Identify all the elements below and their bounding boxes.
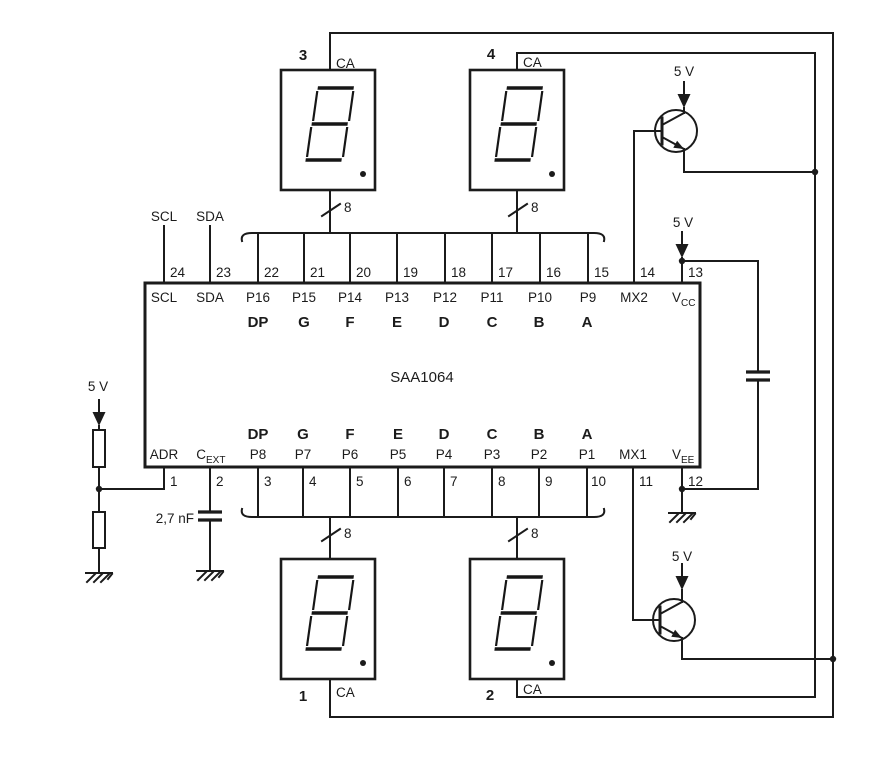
pin-6-number: 6	[404, 474, 412, 489]
seg-top-f: F	[345, 314, 354, 331]
pin-15-number: 15	[594, 265, 609, 280]
seg-top-b: B	[534, 314, 545, 331]
top-bus-brace	[242, 233, 605, 241]
mx2-wire	[634, 131, 662, 283]
pin-11-number: 11	[639, 474, 653, 489]
schematic-page: SAA1064 24 23 22 21 20 19 18 17 16 15 14…	[0, 0, 891, 772]
display-3: 3 CA	[281, 47, 375, 190]
scl-external-label: SCL	[151, 209, 178, 224]
pin-14-number: 14	[640, 265, 656, 280]
supply-arrow-icon	[676, 232, 689, 258]
seg-bot-e: E	[393, 426, 403, 443]
pin-24-number: 24	[170, 265, 186, 280]
bottom-bus-brace	[242, 509, 605, 517]
top-pin-stubs	[258, 233, 588, 283]
seg-top-dp: DP	[248, 314, 269, 331]
pin-19-number: 19	[403, 265, 418, 280]
decoupling-capacitor-icon	[746, 372, 770, 380]
seg-bot-dp: DP	[248, 426, 269, 443]
pin-p13-label: P13	[385, 290, 409, 305]
pin-13-number: 13	[688, 265, 703, 280]
pin-3-number: 3	[264, 474, 272, 489]
pin-p2-label: P2	[531, 447, 548, 462]
top-pin-numbers: 24 23 22 21 20 19 18 17 16 15 14 13	[170, 265, 703, 280]
pin-p4-label: P4	[436, 447, 453, 462]
pin-21-number: 21	[310, 265, 325, 280]
display-4-ca-label: CA	[523, 55, 542, 70]
pin-cext-label: C	[196, 447, 206, 462]
display-3-number: 3	[299, 47, 307, 64]
supply-arrow-icon	[676, 564, 689, 590]
saa1064-schematic: SAA1064 24 23 22 21 20 19 18 17 16 15 14…	[0, 0, 891, 772]
pin-mx1-label: MX1	[619, 447, 647, 462]
seg-top-e: E	[392, 314, 402, 331]
transistor-mx1-emitter-arrow-icon	[671, 630, 682, 638]
seg-bot-a: A	[582, 426, 593, 443]
display-1-ca-label: CA	[336, 685, 355, 700]
bus-width-top-right: 8	[531, 200, 539, 215]
seg-bot-b: B	[534, 426, 545, 443]
seg-top-d: D	[439, 314, 450, 331]
supply-label-mx2: 5 V	[674, 64, 694, 79]
supply-label-adr: 5 V	[88, 379, 108, 394]
ground-icon	[197, 571, 223, 580]
pin-p8-label: P8	[250, 447, 267, 462]
pin-adr-label: ADR	[150, 447, 179, 462]
pin-vcc-label: V	[672, 290, 681, 305]
pin-9-number: 9	[545, 474, 553, 489]
display-2-ca-label: CA	[523, 682, 542, 697]
display-4-number: 4	[487, 46, 496, 63]
ground-icon	[86, 573, 112, 582]
ground-icon	[669, 513, 695, 522]
pin-1-number: 1	[170, 474, 178, 489]
pin-cext-label-sub: EXT	[206, 455, 225, 466]
pin-vee-label-sub: EE	[681, 455, 695, 466]
ic-name: SAA1064	[390, 369, 453, 386]
bus-width-top-left: 8	[344, 200, 352, 215]
pin-4-number: 4	[309, 474, 317, 489]
pin-mx2-label: MX2	[620, 290, 648, 305]
pin-22-number: 22	[264, 265, 279, 280]
seg-top-g: G	[298, 314, 310, 331]
pin-10-number: 10	[591, 474, 606, 489]
pin-p12-label: P12	[433, 290, 457, 305]
sda-external-label: SDA	[196, 209, 224, 224]
bottom-pin-numbers: 1 2 3 4 5 6 7 8 9 10 11 12	[170, 474, 703, 489]
seg-bot-g: G	[297, 426, 309, 443]
transistor-mx2: 5 V	[655, 64, 815, 172]
pin-p9-label: P9	[580, 290, 597, 305]
pin-p1-label: P1	[579, 447, 596, 462]
pin-12-number: 12	[688, 474, 703, 489]
pin-5-number: 5	[356, 474, 364, 489]
pin-23-number: 23	[216, 265, 231, 280]
pin-p5-label: P5	[390, 447, 407, 462]
pin-sda-label: SDA	[196, 290, 224, 305]
bus-width-bottom-left: 8	[344, 526, 352, 541]
pin-p15-label: P15	[292, 290, 316, 305]
pin-p16-label: P16	[246, 290, 270, 305]
cext-capacitor: 2,7 nF	[156, 511, 223, 580]
supply-label-vcc: 5 V	[673, 215, 693, 230]
seg-top-a: A	[582, 314, 593, 331]
adr-wire	[99, 467, 164, 489]
supply-label-mx1: 5 V	[672, 549, 692, 564]
pin-vee-label: V	[672, 447, 681, 462]
pin-18-number: 18	[451, 265, 466, 280]
seg-bot-d: D	[439, 426, 450, 443]
vcc-supply: 5 V	[673, 215, 693, 261]
pin-p3-label: P3	[484, 447, 501, 462]
transistor-mx2-emitter-arrow-icon	[673, 141, 684, 149]
pin-17-number: 17	[498, 265, 513, 280]
resistor-upper-icon	[93, 430, 105, 467]
bus-width-bottom-right: 8	[531, 526, 539, 541]
pin-7-number: 7	[450, 474, 458, 489]
display-1: 1 CA	[281, 559, 375, 705]
seg-bot-c: C	[487, 426, 498, 443]
pin-p10-label: P10	[528, 290, 552, 305]
mx1-wire	[633, 467, 660, 620]
supply-arrow-icon	[678, 82, 691, 108]
display-1-number: 1	[299, 688, 307, 705]
cext-value: 2,7 nF	[156, 511, 194, 526]
resistor-lower-icon	[93, 512, 105, 548]
pin-p11-label: P11	[480, 290, 503, 305]
seg-top-c: C	[487, 314, 498, 331]
seg-bot-f: F	[345, 426, 354, 443]
pin-p7-label: P7	[295, 447, 312, 462]
pin-20-number: 20	[356, 265, 371, 280]
bottom-pin-stubs	[258, 467, 587, 517]
pin-vcc-label-sub: CC	[681, 298, 695, 309]
pin-16-number: 16	[546, 265, 561, 280]
pin-8-number: 8	[498, 474, 506, 489]
pin-p14-label: P14	[338, 290, 363, 305]
transistor-mx1: 5 V	[653, 549, 833, 659]
pin-scl-label: SCL	[151, 290, 178, 305]
supply-arrow-icon	[93, 400, 106, 426]
display-3-ca-label: CA	[336, 56, 355, 71]
pin-p6-label: P6	[342, 447, 359, 462]
pin-2-number: 2	[216, 474, 224, 489]
display-2-number: 2	[486, 687, 494, 704]
